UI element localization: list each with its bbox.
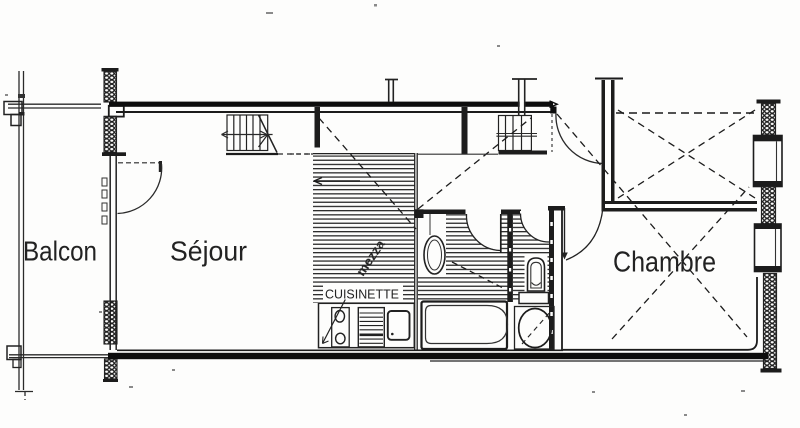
svg-text:Chambre: Chambre <box>613 247 716 279</box>
svg-text:Séjour: Séjour <box>170 236 247 267</box>
svg-text:Balcon: Balcon <box>23 236 97 267</box>
svg-text:CUISINETTE: CUISINETTE <box>325 287 399 302</box>
